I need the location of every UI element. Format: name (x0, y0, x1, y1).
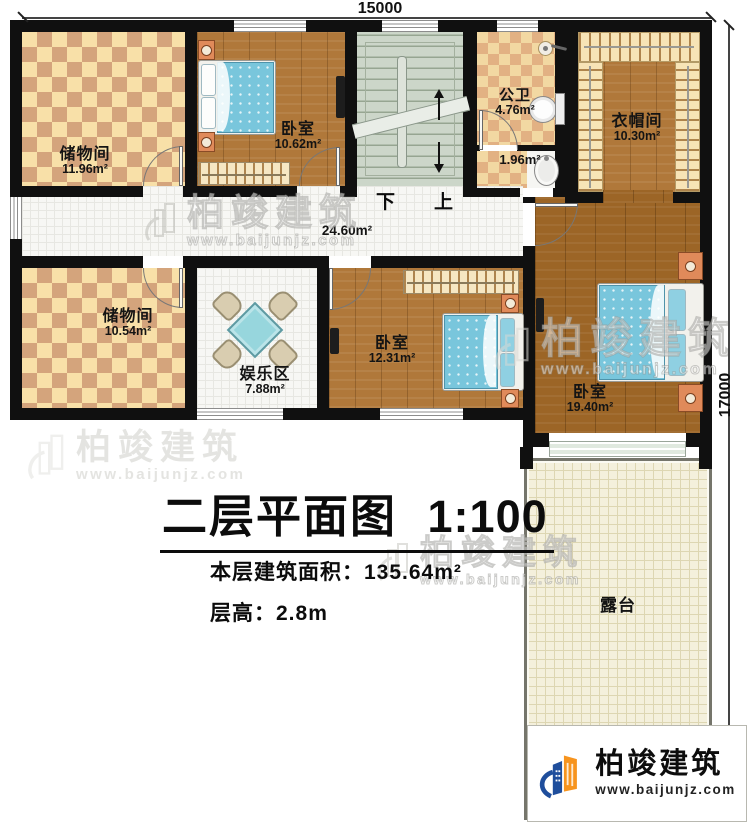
watermark-text: 柏竣建筑 (76, 430, 245, 465)
room-label-play: 娱乐区 7.88m² (215, 366, 315, 397)
wall (317, 268, 329, 408)
wall (463, 32, 477, 196)
dimension-right: 17000 (717, 365, 735, 425)
pillow (500, 318, 515, 352)
room-label-storage-bottom: 储物间 10.54m² (70, 308, 186, 339)
wall (673, 192, 712, 203)
floor-height-value: 2.8m (276, 602, 328, 625)
tv-panel (336, 76, 345, 118)
tv-panel (330, 328, 339, 354)
wardrobe-rack (198, 162, 290, 185)
window (197, 408, 283, 420)
title-block: 二层平面图 1:100 (160, 480, 554, 545)
door-leaf (336, 147, 340, 186)
wall (523, 246, 535, 433)
stairs-up-label: 上 (434, 187, 453, 214)
floor-plan-canvas: 下 上 (0, 0, 750, 826)
room-label-hall: 24.60m² (305, 224, 389, 239)
wall (517, 145, 555, 151)
stairs-up-arrow (438, 97, 440, 120)
floor-height-line: 层高：2.8m (210, 597, 328, 627)
wall (10, 20, 712, 32)
stairs-up-arrow-head (434, 89, 444, 98)
blanket-fold (650, 285, 664, 378)
nightstand (678, 384, 703, 412)
brand-name: 柏竣建筑 (595, 750, 736, 779)
wall (340, 186, 357, 197)
wall (699, 447, 712, 469)
wall (185, 268, 197, 408)
window (380, 408, 463, 420)
tv-panel (536, 298, 544, 332)
nightstand (501, 294, 519, 313)
watermark: 柏竣建筑 www.baijunjz.com (28, 430, 245, 485)
pillow (668, 289, 686, 331)
window (10, 197, 22, 239)
wall (10, 186, 143, 197)
wardrobe-rack (403, 270, 519, 294)
toilet-tank (555, 93, 565, 125)
wall (565, 192, 603, 203)
wall (10, 256, 143, 268)
brand-logo-box: 柏竣建筑 www.baijunjz.com (527, 725, 747, 822)
brand-url: www.baijunjz.com (595, 782, 736, 797)
cloak-doorway-floor (603, 190, 673, 203)
room-label-storage-top: 储物间 11.96m² (30, 146, 140, 177)
wall (463, 145, 480, 151)
nightstand (198, 132, 215, 152)
floor-area-value: 135.64m² (364, 561, 462, 584)
wall (520, 447, 533, 469)
door-leaf (329, 268, 333, 310)
door-leaf (179, 146, 183, 186)
room-label-terrace: 露台 (588, 597, 648, 615)
wall (183, 256, 329, 268)
nightstand (198, 40, 215, 60)
terrace-slider-door (549, 441, 686, 457)
stairs-down-label: 下 (376, 187, 395, 214)
room-label-bedroom-top: 卧室 10.62m² (248, 121, 348, 152)
title-scale: 1:100 (428, 491, 548, 542)
room-label-bedroom-mid: 卧室 12.31m² (340, 335, 444, 366)
nightstand (678, 252, 703, 280)
wall (345, 32, 357, 197)
door-leaf (179, 268, 183, 308)
wall (523, 433, 549, 447)
dimension-top-line (22, 17, 712, 19)
brand-logo-icon (538, 747, 588, 801)
door-leaf (535, 203, 578, 207)
wall (371, 256, 523, 268)
pillow (500, 353, 515, 387)
blanket-fold (483, 315, 496, 387)
shower-icon-dot (543, 46, 548, 51)
floor-height-label: 层高： (210, 602, 276, 625)
room-label-cloak: 衣帽间 10.30m² (584, 113, 690, 144)
window (234, 20, 306, 32)
stairs-down-arrow (438, 142, 440, 165)
floor-area-line: 本层建筑面积：135.64m² (210, 556, 462, 586)
title-text: 二层平面图 (162, 491, 397, 542)
wall (523, 197, 535, 203)
dimension-top: 15000 (340, 0, 420, 18)
floor-area-label: 本层建筑面积： (210, 561, 364, 584)
stairs-down-arrow-head (434, 164, 444, 173)
pillow (201, 64, 216, 96)
window (382, 20, 438, 32)
pillow (201, 97, 216, 129)
wall (463, 188, 520, 197)
room-label-wash: 1.96m² (490, 153, 550, 167)
watermark-logo-icon (28, 431, 68, 483)
window (497, 20, 538, 32)
hanger-rod (584, 46, 694, 48)
page-title: 二层平面图 1:100 (160, 491, 554, 553)
wall (686, 433, 712, 447)
nightstand (501, 389, 519, 408)
room-label-bedroom-master: 卧室 19.40m² (535, 384, 645, 415)
room-label-bath: 公卫 4.76m² (478, 88, 552, 118)
pillow (668, 334, 686, 376)
wall (183, 186, 297, 197)
wall (185, 32, 197, 186)
